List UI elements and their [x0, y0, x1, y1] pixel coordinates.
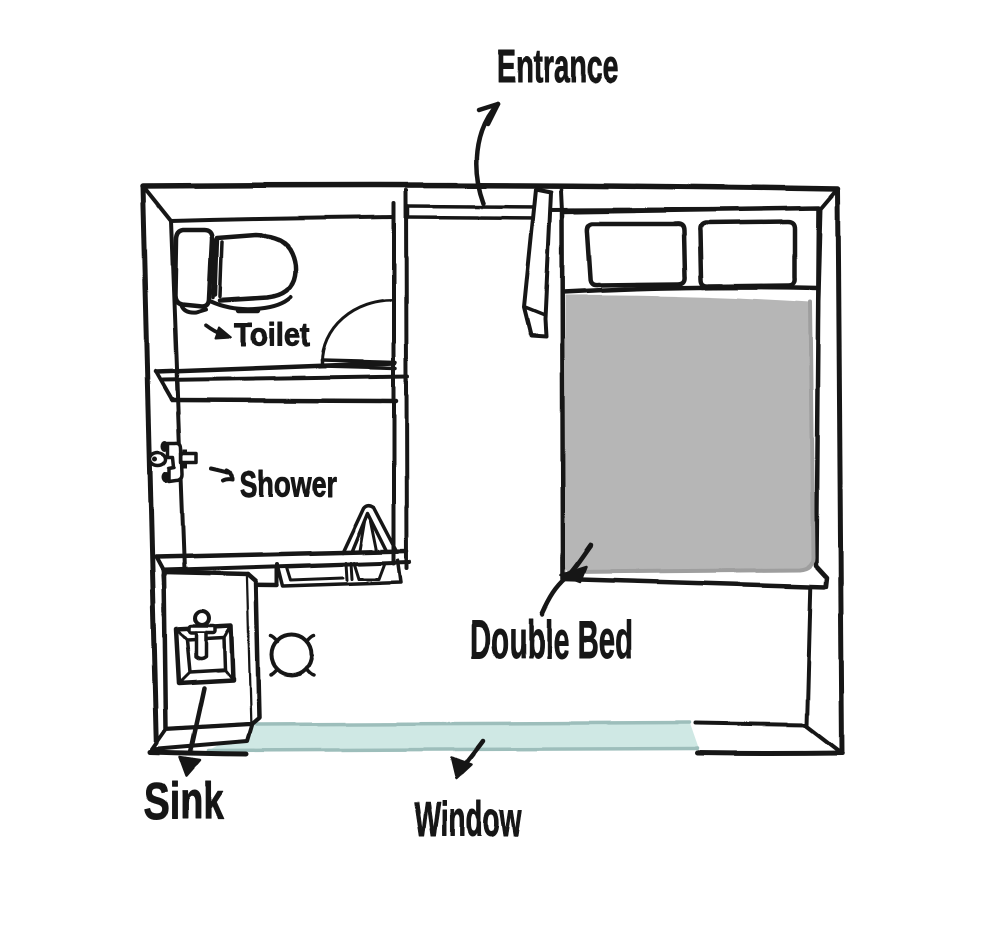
- svg-text:Shower: Shower: [240, 464, 337, 505]
- svg-text:Sink: Sink: [144, 773, 224, 831]
- svg-text:Toilet: Toilet: [234, 316, 310, 353]
- svg-text:Double Bed: Double Bed: [470, 610, 633, 670]
- svg-text:Window: Window: [414, 794, 522, 847]
- svg-text:Entrance: Entrance: [497, 40, 619, 92]
